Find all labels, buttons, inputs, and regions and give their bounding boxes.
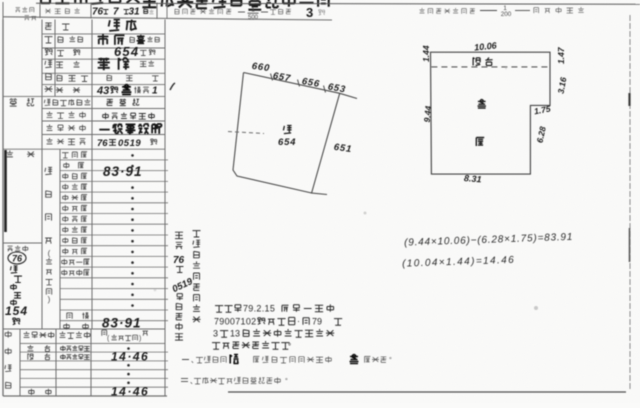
svg-text:3: 3 [306, 5, 313, 20]
svg-text:43: 43 [96, 85, 109, 97]
svg-text:200: 200 [501, 11, 512, 18]
svg-text:76: 76 [97, 138, 108, 149]
svg-text:1: 1 [152, 86, 158, 97]
svg-text:1: 1 [251, 7, 255, 14]
svg-text:500: 500 [248, 15, 259, 21]
svg-text:°: ° [288, 342, 291, 351]
svg-text:3: 3 [213, 329, 218, 339]
svg-text:1.44: 1.44 [421, 45, 431, 62]
svg-text:0519: 0519 [118, 138, 141, 149]
svg-text:14·46: 14·46 [111, 350, 149, 364]
svg-text:83·91: 83·91 [102, 316, 142, 331]
svg-text:8.31: 8.31 [464, 173, 482, 184]
svg-text:、: 、 [191, 358, 198, 365]
svg-text:76: 76 [92, 7, 104, 18]
svg-text:): ) [48, 295, 51, 304]
svg-text:654: 654 [114, 44, 139, 59]
svg-text:·: · [297, 316, 300, 326]
svg-text:76: 76 [12, 254, 23, 264]
svg-text:7: 7 [113, 7, 119, 18]
svg-text:79.2.15: 79.2.15 [243, 304, 275, 314]
svg-text:154: 154 [5, 304, 28, 318]
svg-text:14·46: 14·46 [111, 385, 149, 399]
svg-text:1.47: 1.47 [556, 46, 566, 64]
svg-text:13: 13 [230, 329, 240, 339]
svg-text:(: ( [48, 249, 51, 258]
svg-text:31: 31 [129, 7, 141, 18]
svg-text:83·91: 83·91 [103, 164, 143, 179]
svg-text:76: 76 [173, 255, 185, 266]
svg-text:): ) [139, 336, 141, 343]
svg-text:°: ° [389, 356, 392, 364]
svg-text:、: 、 [190, 379, 197, 386]
svg-text:79007102: 79007102 [214, 317, 256, 327]
svg-text:°: ° [285, 377, 288, 385]
svg-text:79: 79 [312, 317, 322, 327]
svg-text:9.44: 9.44 [422, 105, 433, 123]
svg-text:654: 654 [278, 137, 296, 148]
